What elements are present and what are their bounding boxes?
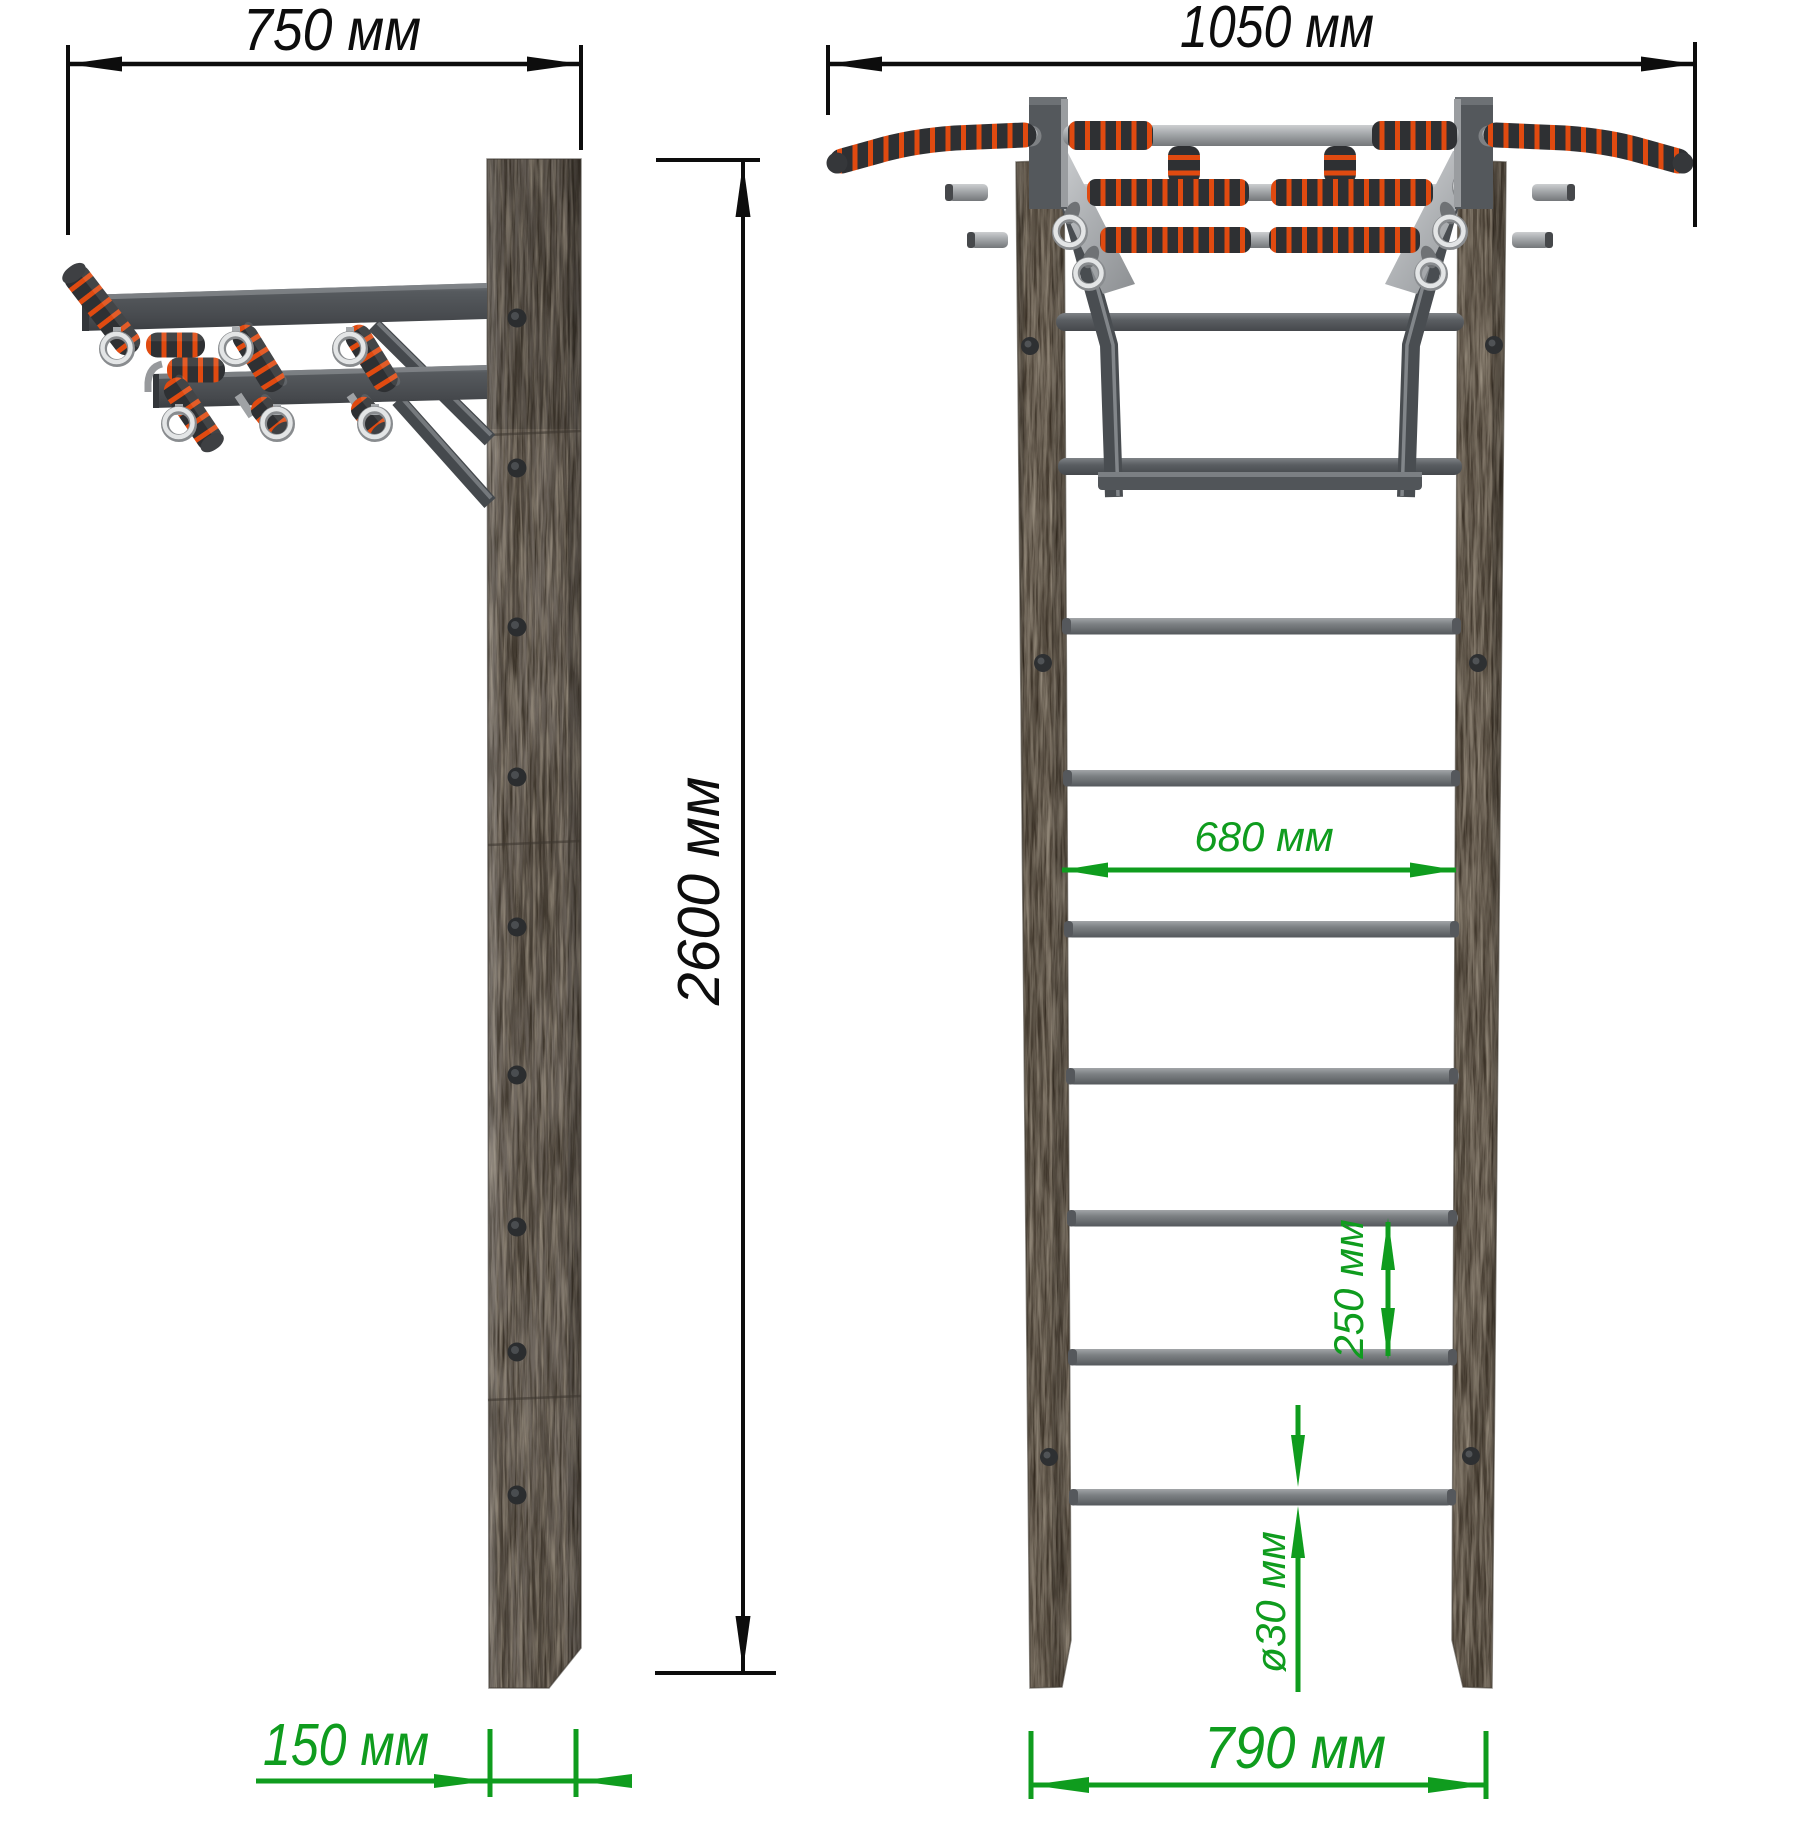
svg-text:ø30 мм: ø30 мм	[1247, 1531, 1294, 1673]
svg-text:1050 мм: 1050 мм	[1180, 0, 1374, 60]
svg-text:680 мм: 680 мм	[1194, 813, 1333, 860]
svg-text:750 мм: 750 мм	[243, 0, 421, 63]
svg-text:2600 мм: 2600 мм	[666, 777, 732, 1007]
svg-text:150 мм: 150 мм	[263, 1712, 429, 1778]
svg-text:790 мм: 790 мм	[1204, 1715, 1386, 1781]
svg-text:250 мм: 250 мм	[1325, 1219, 1372, 1359]
